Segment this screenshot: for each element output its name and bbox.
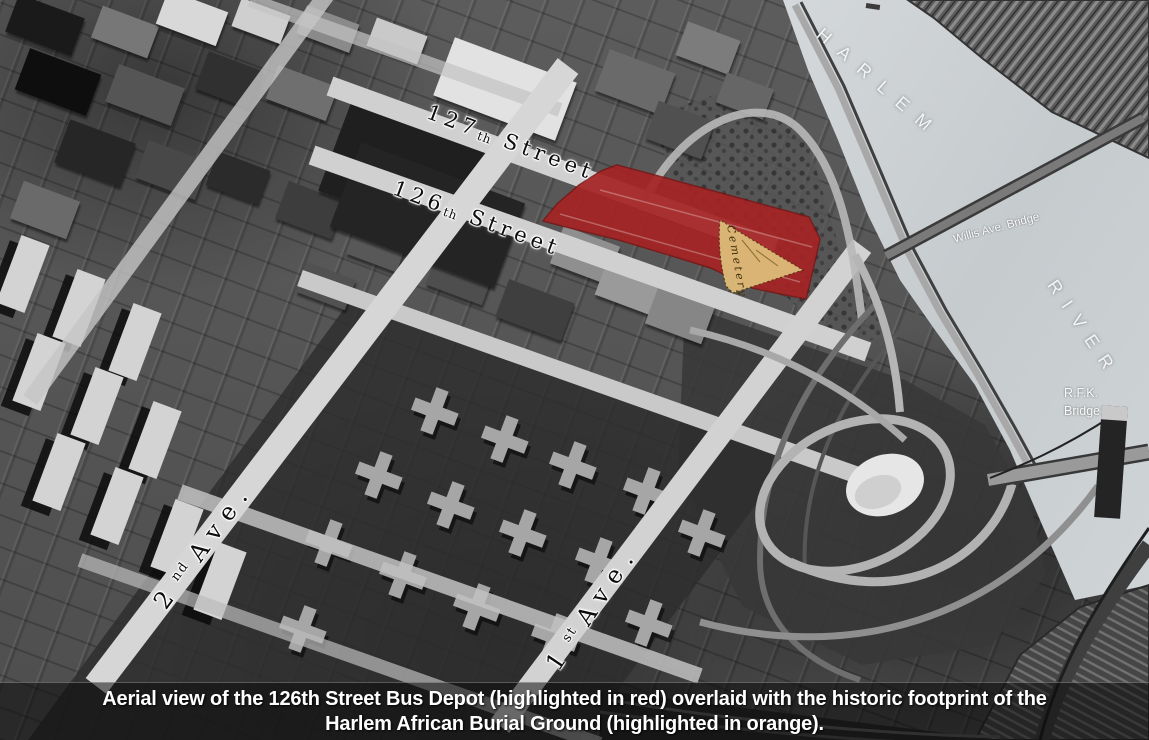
street-number: 126 (390, 176, 450, 218)
street-word: Street (466, 205, 564, 261)
street-label-127th: 127thStreet (424, 100, 599, 185)
avenue-word: Ave. (570, 539, 645, 631)
avenue-label-2nd: 2ndAve. (148, 476, 259, 614)
caption-line2: Harlem African Burial Ground (highlighte… (325, 712, 824, 736)
river-name-harlem: HARLEM (812, 24, 946, 144)
cemetery-label: Cemetery (724, 224, 750, 299)
street-word: Street (500, 129, 598, 185)
aerial-photo: 127thStreet 126thStreet 2ndAve. 1stAve. … (0, 0, 1149, 740)
caption-line1: Aerial view of the 126th Street Bus Depo… (102, 687, 1046, 711)
avenue-word: Ave. (183, 476, 260, 567)
rfk-label-line1: R.F.K. (1064, 384, 1100, 402)
caption-bar: Aerial view of the 126th Street Bus Depo… (0, 682, 1149, 740)
rfk-bridge-label: R.F.K. Bridge (1064, 384, 1100, 420)
street-number: 127 (424, 100, 484, 142)
street-ordinal: th (475, 129, 494, 147)
river-name-river: RIVER (1043, 276, 1125, 383)
map-labels: 127thStreet 126thStreet 2ndAve. 1stAve. … (0, 0, 1149, 740)
street-ordinal: th (441, 205, 460, 223)
rfk-label-line2: Bridge (1064, 402, 1100, 420)
avenue-label-1st: 1stAve. (540, 539, 645, 676)
willis-bridge-label: Willis Ave. Bridge (952, 211, 1041, 246)
street-label-126th: 126thStreet (390, 176, 565, 261)
